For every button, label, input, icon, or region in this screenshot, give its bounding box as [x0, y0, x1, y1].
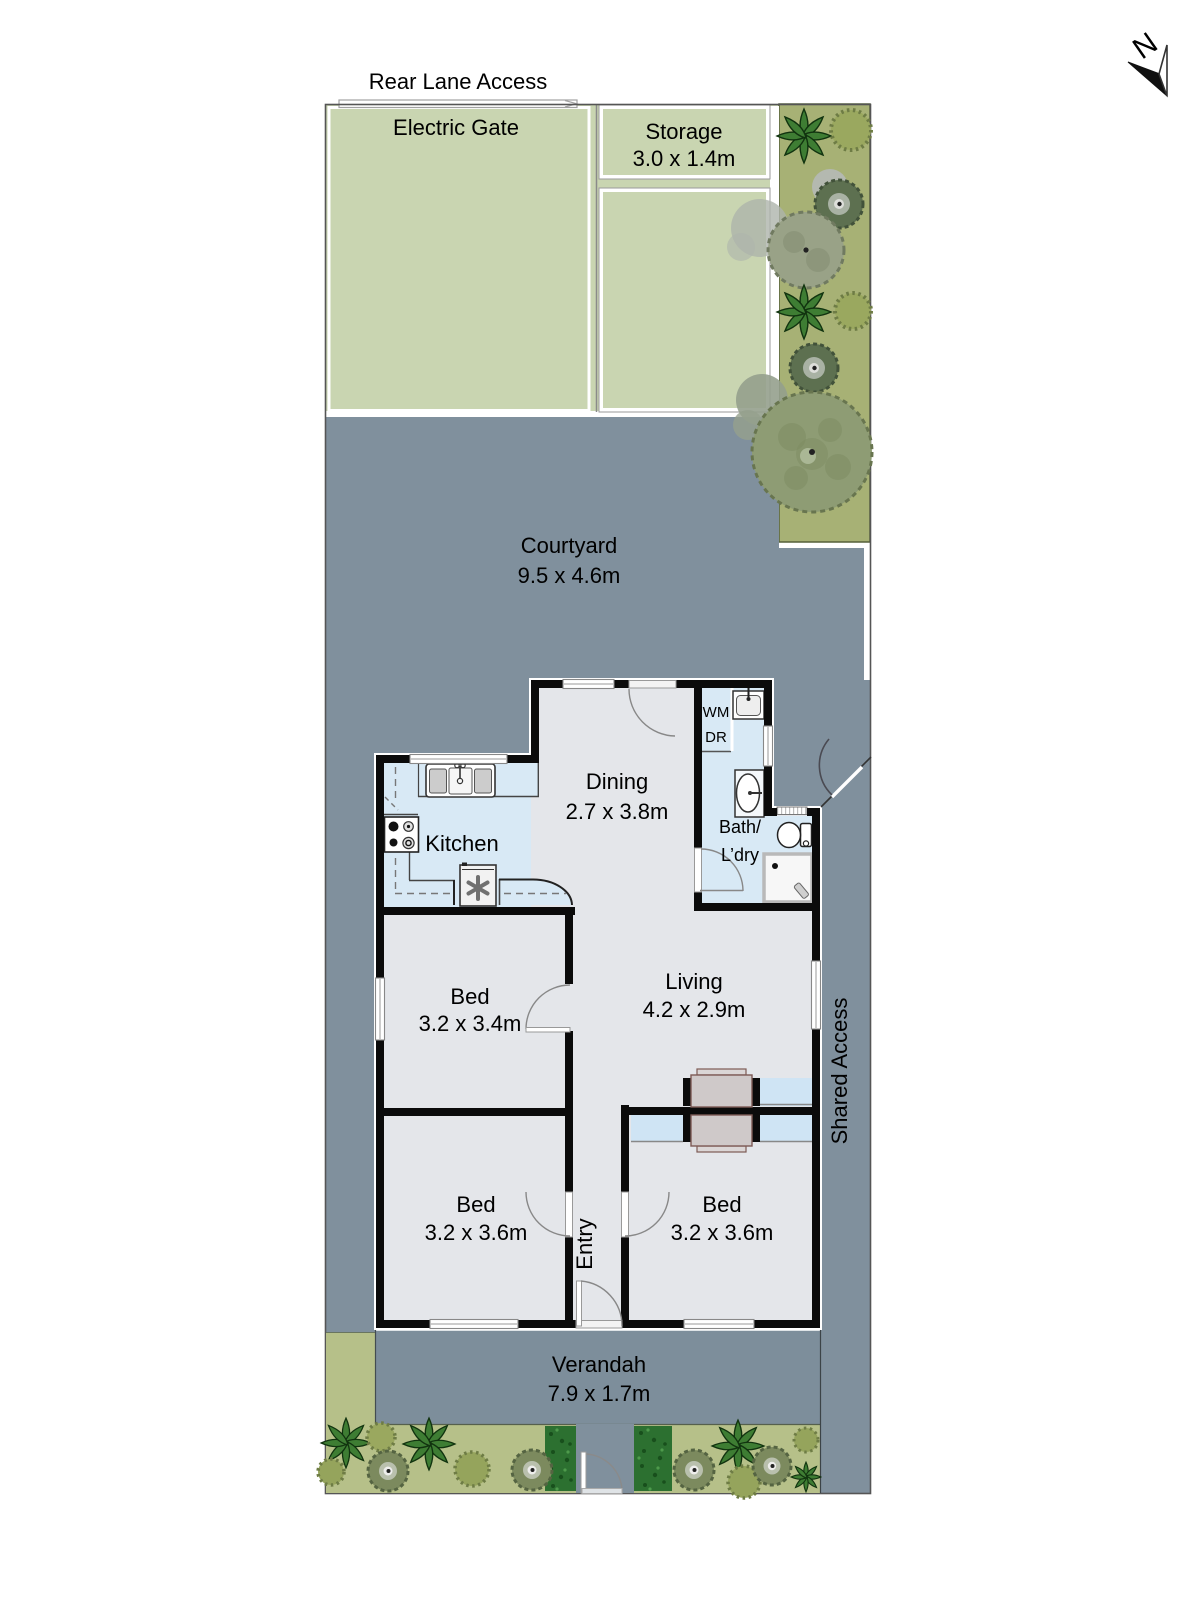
- svg-text:L’dry: L’dry: [721, 845, 759, 865]
- svg-text:3.0 x 1.4m: 3.0 x 1.4m: [633, 146, 736, 171]
- svg-text:Entry: Entry: [572, 1218, 597, 1269]
- svg-text:Electric Gate: Electric Gate: [393, 115, 519, 140]
- svg-text:Storage: Storage: [645, 119, 722, 144]
- svg-text:4.2 x 2.9m: 4.2 x 2.9m: [643, 997, 746, 1022]
- svg-text:Rear Lane Access: Rear Lane Access: [369, 69, 548, 94]
- svg-text:Bed: Bed: [456, 1192, 495, 1217]
- svg-text:9.5 x 4.6m: 9.5 x 4.6m: [518, 563, 621, 588]
- svg-text:Courtyard: Courtyard: [521, 533, 618, 558]
- svg-text:2.7 x 3.8m: 2.7 x 3.8m: [566, 799, 669, 824]
- svg-text:Bath/: Bath/: [719, 817, 761, 837]
- svg-text:3.2 x 3.6m: 3.2 x 3.6m: [425, 1220, 528, 1245]
- svg-text:Bed: Bed: [450, 984, 489, 1009]
- svg-text:Dining: Dining: [586, 769, 648, 794]
- svg-text:Living: Living: [665, 969, 722, 994]
- svg-text:Shared Access: Shared Access: [827, 998, 852, 1145]
- svg-text:WM: WM: [703, 704, 730, 721]
- svg-text:3.2 x 3.6m: 3.2 x 3.6m: [671, 1220, 774, 1245]
- svg-text:3.2 x 3.4m: 3.2 x 3.4m: [419, 1011, 522, 1036]
- svg-text:7.9 x 1.7m: 7.9 x 1.7m: [548, 1381, 651, 1406]
- svg-text:Bed: Bed: [702, 1192, 741, 1217]
- svg-text:Verandah: Verandah: [552, 1352, 646, 1377]
- svg-text:Kitchen: Kitchen: [425, 831, 498, 856]
- svg-text:DR: DR: [705, 729, 727, 746]
